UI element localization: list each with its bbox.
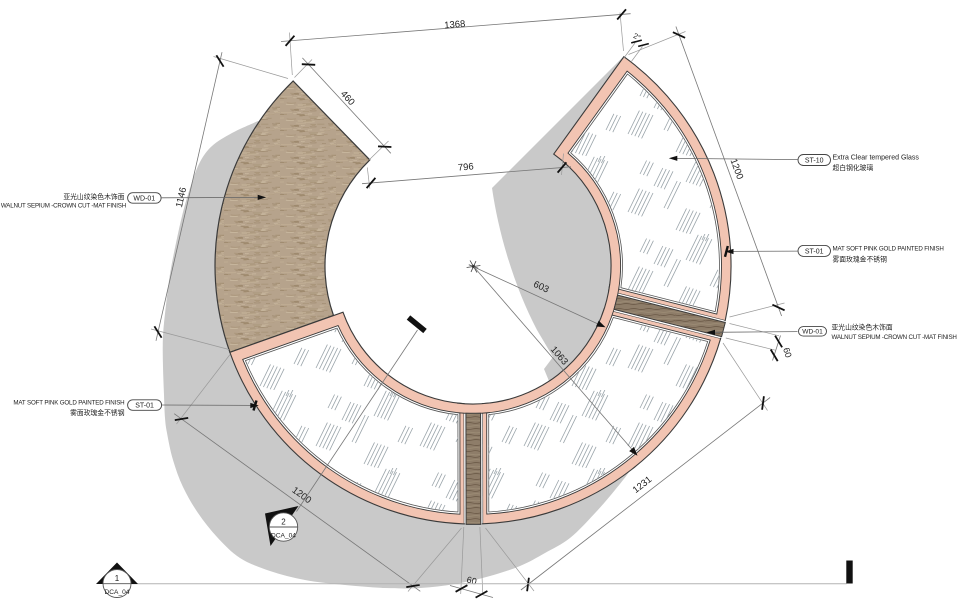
svg-text:MAT SOFT PINK GOLD PAINTED FIN: MAT SOFT PINK GOLD PAINTED FINISH <box>13 400 124 407</box>
svg-text:WD-01: WD-01 <box>802 329 823 336</box>
svg-text:460: 460 <box>338 89 357 108</box>
svg-text:雾面玫瑰金不锈钢: 雾面玫瑰金不锈钢 <box>70 408 125 417</box>
svg-text:1: 1 <box>115 574 120 583</box>
svg-text:雾面玫瑰金不锈钢: 雾面玫瑰金不锈钢 <box>833 255 888 264</box>
svg-text:796: 796 <box>457 161 474 173</box>
svg-text:超白钢化玻璃: 超白钢化玻璃 <box>833 163 874 172</box>
svg-text:亚光山纹染色木饰面: 亚光山纹染色木饰面 <box>63 192 124 201</box>
svg-text:ST-01: ST-01 <box>135 402 154 409</box>
svg-text:亚光山纹染色木饰面: 亚光山纹染色木饰面 <box>832 323 893 332</box>
svg-text:Extra Clear tempered Glass: Extra Clear tempered Glass <box>833 155 920 162</box>
svg-text:ST-10: ST-10 <box>805 157 824 164</box>
svg-text:1368: 1368 <box>444 19 466 32</box>
svg-text:60: 60 <box>781 346 794 359</box>
svg-text:WD-01: WD-01 <box>133 195 155 202</box>
svg-text:WALNUT SEPIUM -CROWN CUT -MAT: WALNUT SEPIUM -CROWN CUT -MAT FINISH <box>1 203 126 210</box>
svg-text:1200: 1200 <box>728 157 746 181</box>
svg-text:WALNUT SEPIUM -CROWN CUT -MAT: WALNUT SEPIUM -CROWN CUT -MAT FINISH <box>832 334 957 341</box>
svg-text:DCA_04: DCA_04 <box>105 589 130 596</box>
svg-text:60: 60 <box>466 575 478 587</box>
svg-text:MAT SOFT PINK GOLD PAINTED FIN: MAT SOFT PINK GOLD PAINTED FINISH <box>833 246 944 253</box>
svg-text:1231: 1231 <box>631 474 654 496</box>
svg-text:ST-01: ST-01 <box>805 248 824 255</box>
svg-text:2: 2 <box>281 518 286 527</box>
svg-text:DCA_04: DCA_04 <box>271 533 296 540</box>
